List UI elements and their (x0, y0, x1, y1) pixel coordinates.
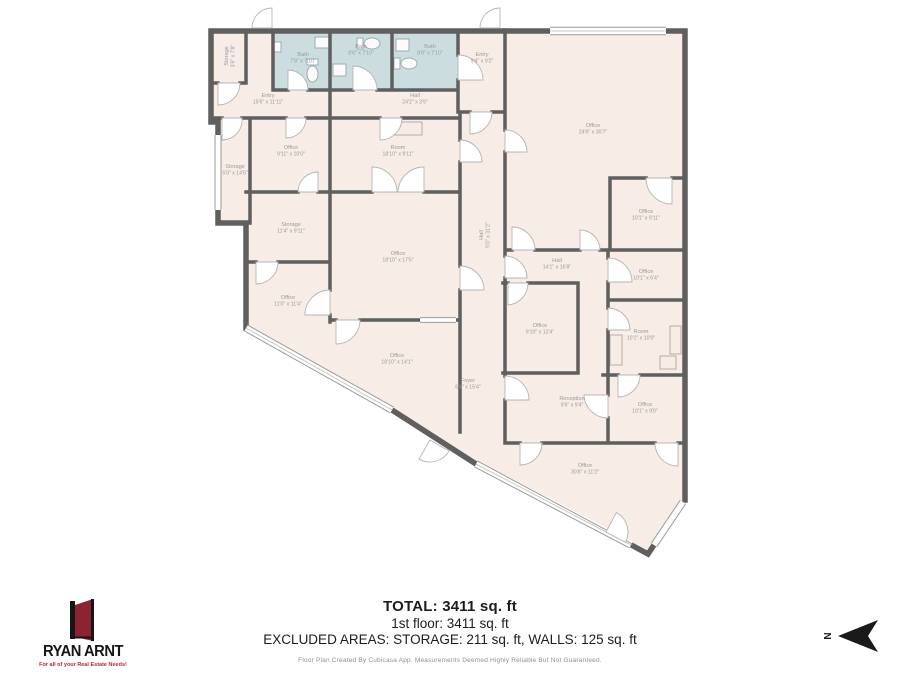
agent-logo: RYAN ARNT For all of your Real Estate Ne… (18, 598, 148, 668)
room-label: Storage3'6" x 7'8" (224, 45, 237, 68)
open-door-icon (63, 598, 103, 642)
floor-outline-fill (211, 31, 685, 554)
north-arrow-glyph (838, 620, 878, 652)
room-label: Storage5'0" x 14'5" (222, 164, 248, 177)
floorplan-drawing: Storage3'6" x 7'8"Entry15'6" x 11'11"Bat… (0, 0, 900, 675)
floorplan-page: Storage3'6" x 7'8"Entry15'6" x 11'11"Bat… (0, 0, 900, 675)
logo-tagline: For all of your Real Estate Needs! (18, 662, 148, 668)
north-arrow: N (814, 612, 884, 660)
logo-name: RYAN ARNT (23, 643, 143, 661)
north-label: N (823, 632, 834, 639)
room-label: Reception9'6" x 9'4" (559, 396, 584, 409)
